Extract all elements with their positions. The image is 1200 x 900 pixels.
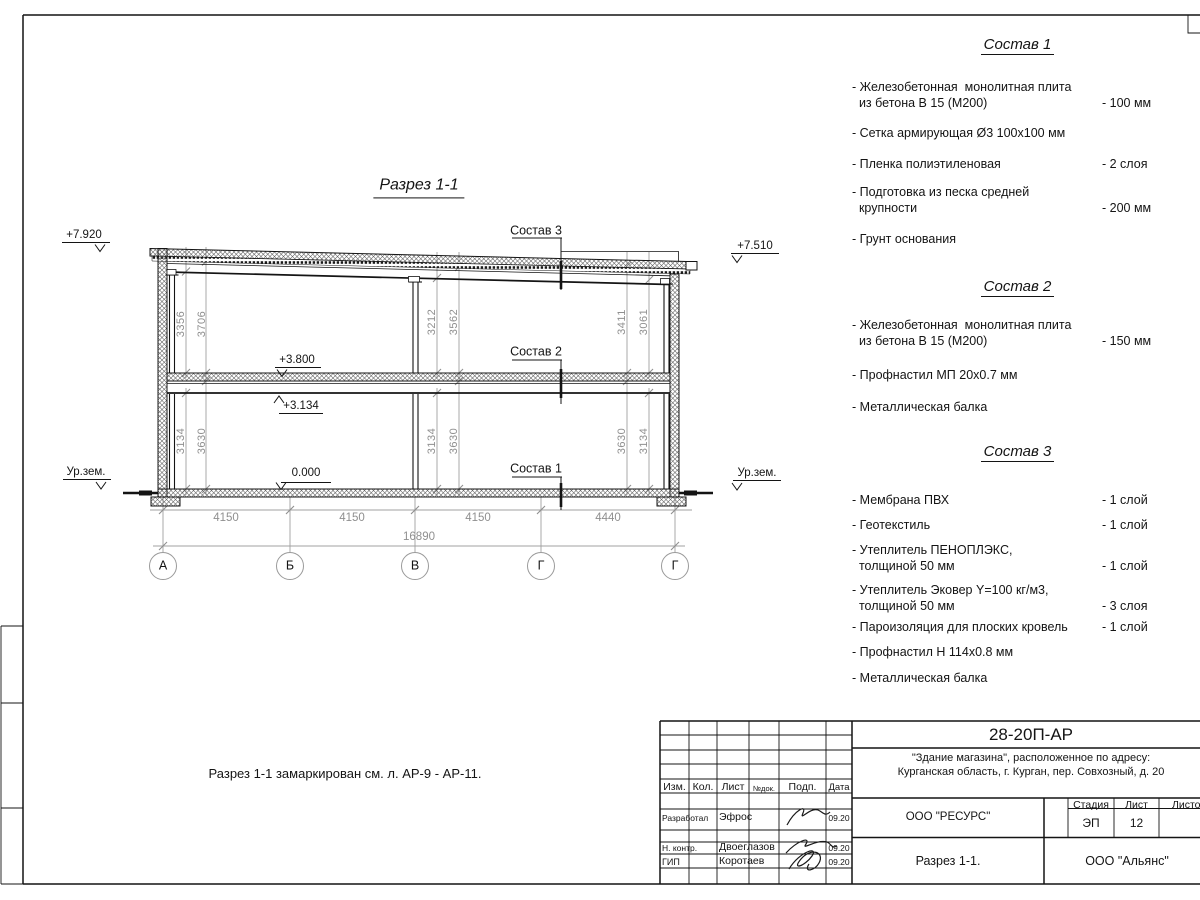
composition-list-2: Состав 2 - Железобетонная монолитная пли…	[845, 278, 1190, 423]
list-item: - Пленка полиэтиленовая- 2 слоя	[852, 157, 1190, 173]
section-title: Разрез 1-1	[373, 175, 464, 198]
col-izm: Изм.	[660, 781, 689, 793]
ground-level-right: Ур.зем.	[737, 467, 776, 481]
dim-lower-right-1: 3630	[616, 428, 628, 454]
list-item: - Сетка армирующая Ø3 100х100 мм	[852, 126, 1190, 142]
composition-1-title: Состав 1	[845, 36, 1190, 55]
stage-value: ЭП	[1068, 816, 1114, 830]
col-doc: №док.	[749, 784, 779, 793]
elevation-roof-left: +7.920	[66, 229, 102, 243]
composition-list-3: Состав 3 - Мембрана ПВХ- 1 слой - Геотек…	[845, 443, 1190, 698]
composition-list-1: Состав 1 - Железобетонная монолитная пли…	[845, 36, 1190, 271]
axis-bubble-v: В	[411, 559, 419, 574]
col-kol: Кол.	[689, 781, 717, 793]
list-item: - Металлическая балка	[852, 671, 1190, 687]
floor-slab	[167, 373, 670, 381]
axis-bubble-g1: Г	[538, 559, 545, 574]
dim-upper-right-1: 3411	[616, 309, 628, 335]
dim-upper-right-2: 3061	[638, 309, 650, 335]
dim-upper-mid-2: 3562	[448, 309, 460, 335]
stage-label: Стадия	[1068, 799, 1114, 811]
list-item: - Железобетонная монолитная плита из бет…	[852, 80, 1190, 111]
axis-bubble-b: Б	[286, 559, 294, 574]
list-item: - Профнастил МП 20х0.7 мм	[852, 368, 1190, 384]
composition-3-title: Состав 3	[845, 443, 1190, 462]
col-data: Дата	[826, 782, 852, 793]
col-list: Лист	[717, 781, 749, 793]
row-name: Эфрос	[719, 811, 752, 823]
list-item: - Грунт основания	[852, 232, 1190, 248]
titleblock-sheet-title: Разрез 1-1.	[852, 854, 1044, 868]
axis-bubble-g2: Г	[672, 559, 679, 574]
row-name: Двоеглазов	[719, 841, 775, 853]
roof-assembly	[150, 249, 697, 285]
right-wall	[670, 274, 679, 497]
row-role: ГИП	[662, 857, 680, 867]
col-podp: Подп.	[779, 781, 826, 793]
dimension-lines	[150, 247, 692, 552]
dim-total: 16890	[403, 531, 435, 545]
list-item: - Подготовка из песка средней крупности-…	[852, 185, 1190, 216]
dim-bay-1: 4150	[213, 512, 239, 526]
elevation-roof-right: +7.510	[737, 240, 773, 254]
row-name: Коротаев	[719, 855, 764, 867]
dimension-ticks	[159, 258, 679, 551]
ground-level-left: Ур.зем.	[66, 466, 105, 480]
dim-lower-right-2: 3134	[638, 428, 650, 454]
doc-number: 28-20П-АР	[852, 725, 1200, 745]
composition-2-title: Состав 2	[845, 278, 1190, 297]
row-role: Н. контр.	[662, 843, 697, 853]
footing-right	[657, 497, 686, 506]
dim-lower-left-1: 3134	[175, 428, 187, 454]
list-item: - Геотекстиль- 1 слой	[852, 518, 1190, 534]
project-address-line2: Курганская область, г. Курган, пер. Совх…	[852, 766, 1200, 778]
ground-slab	[158, 489, 679, 497]
dim-lower-mid-2: 3630	[448, 428, 460, 454]
left-wall	[158, 249, 167, 498]
list-item: - Пароизоляция для плоских кровель- 1 сл…	[852, 620, 1190, 636]
project-address-line1: "Здание магазина", расположенное по адре…	[852, 752, 1200, 764]
dim-bay-3: 4150	[465, 512, 491, 526]
dim-bay-2: 4150	[339, 512, 365, 526]
list-item: - Утеплитель ПЕНОПЛЭКС, толщиной 50 мм- …	[852, 543, 1190, 574]
dim-lower-left-2: 3630	[196, 428, 208, 454]
roof-edge-cap	[686, 262, 697, 271]
signature-efros	[787, 809, 830, 825]
label-sostav-2: Состав 2	[510, 345, 562, 360]
row-date: 09.20	[826, 813, 852, 823]
company-name: ООО "Альянс"	[1044, 854, 1200, 868]
elevation-beam: +3.134	[283, 400, 319, 414]
sheet-number: 12	[1114, 816, 1159, 830]
list-item: - Мембрана ПВХ- 1 слой	[852, 493, 1190, 509]
list-item: - Металлическая балка	[852, 400, 1190, 416]
label-sostav-1: Состав 1	[510, 462, 562, 477]
drawing-note: Разрез 1-1 замаркирован см. л. АР-9 - АР…	[209, 766, 482, 782]
list-item: - Утеплитель Эковер Y=100 кг/м3, толщино…	[852, 583, 1190, 614]
org-name: ООО "РЕСУРС"	[852, 811, 1044, 823]
list-item: - Профнастил Н 114х0.8 мм	[852, 645, 1190, 661]
axis-bubble-a: А	[159, 559, 167, 574]
row-date: 09.20	[826, 843, 852, 853]
list-item: - Железобетонная монолитная плита из бет…	[852, 318, 1190, 349]
elevation-zero: 0.000	[292, 467, 321, 481]
elevation-floor: +3.800	[279, 354, 315, 368]
dim-upper-left-2: 3706	[196, 311, 208, 337]
drawing-sheet: Разрез 1-1 Разрез 1-1 замаркирован см. л…	[0, 0, 1200, 900]
dim-bay-4: 4440	[595, 512, 621, 526]
row-role: Разработал	[662, 813, 708, 823]
sheet-label: Лист	[1114, 799, 1159, 811]
dim-upper-mid-1: 3212	[426, 309, 438, 335]
footing-left	[151, 497, 180, 506]
ground-assembly	[123, 489, 713, 506]
dim-lower-mid-1: 3134	[426, 428, 438, 454]
sheets-label: Листов	[1159, 799, 1200, 811]
label-sostav-3: Состав 3	[510, 224, 562, 239]
dim-upper-left-1: 3356	[175, 311, 187, 337]
row-date: 09.20	[826, 857, 852, 867]
floor-assembly	[167, 373, 670, 393]
